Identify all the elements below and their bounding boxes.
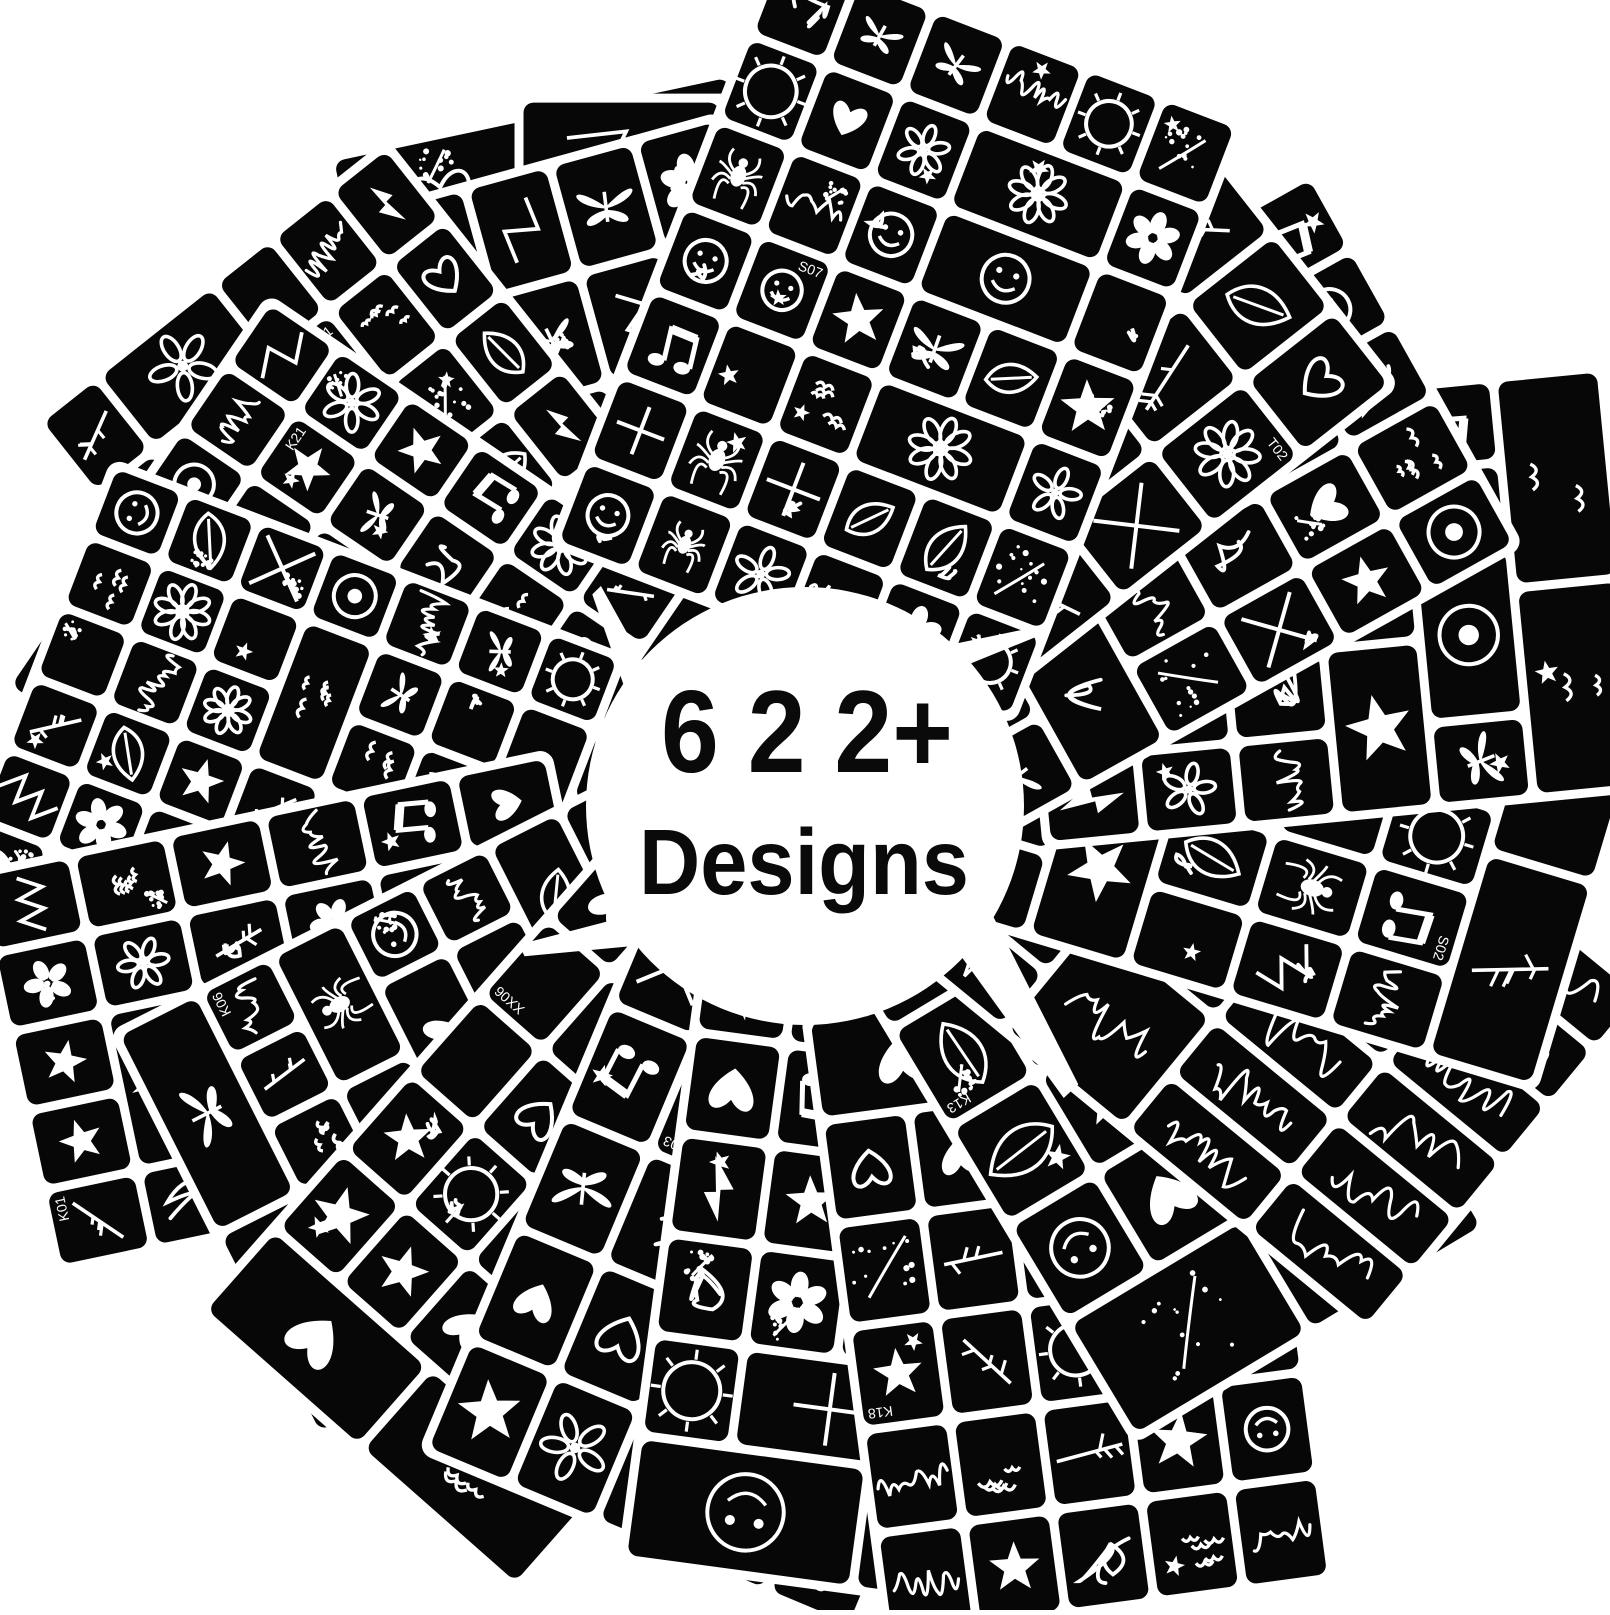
svg-text:K18: K18 (867, 1403, 894, 1422)
svg-text:Designs: Designs (639, 810, 969, 914)
svg-text:6 2 2+: 6 2 2+ (661, 666, 953, 797)
